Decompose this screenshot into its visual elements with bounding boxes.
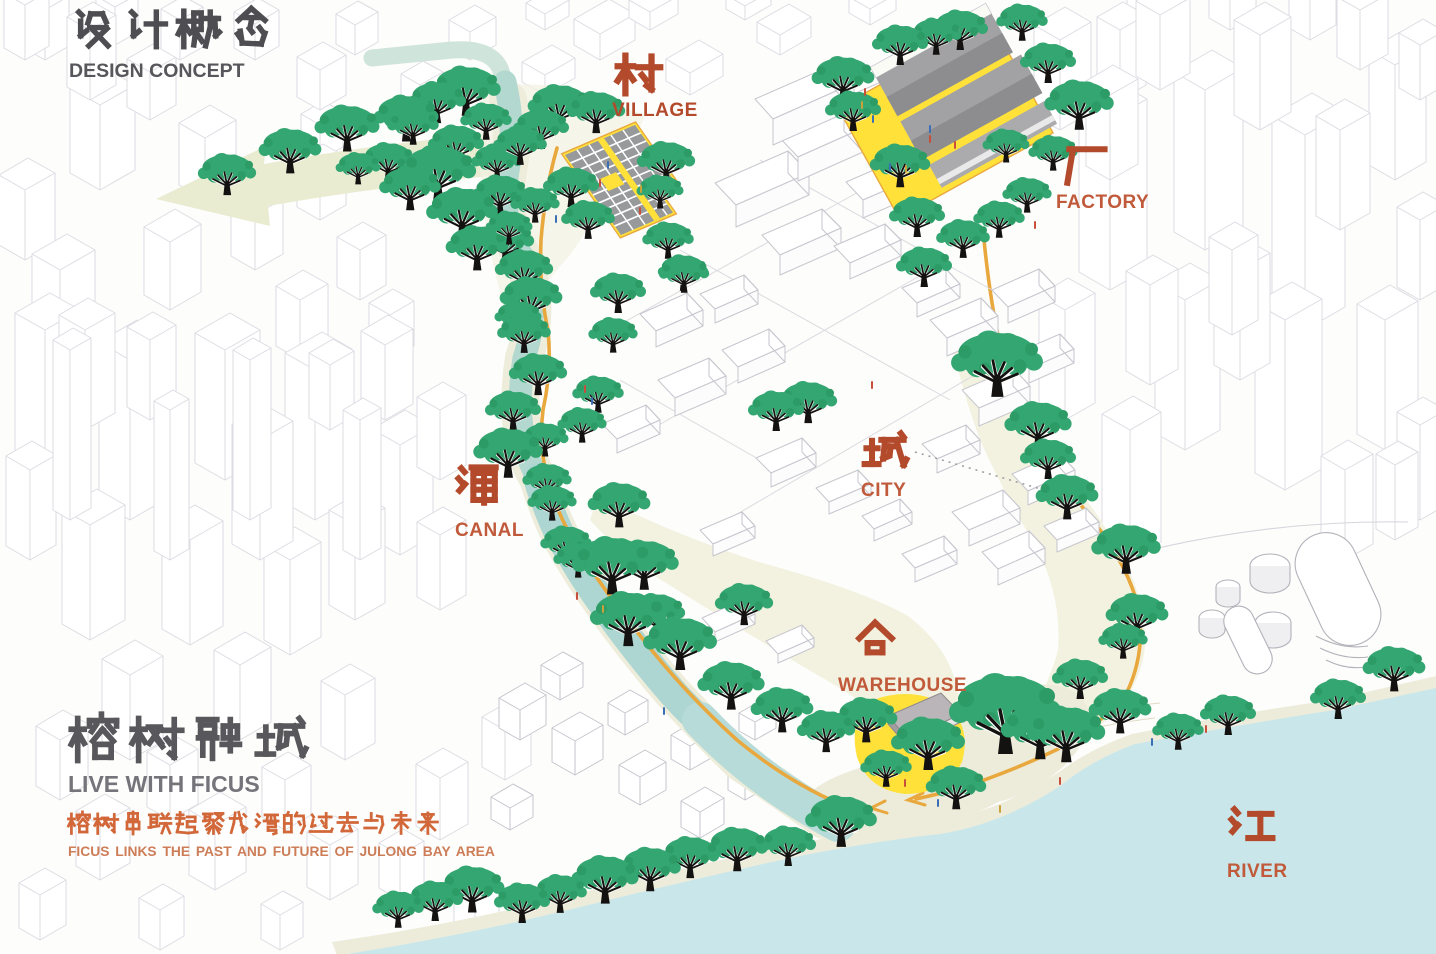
svg-text:RIVER: RIVER bbox=[1227, 861, 1288, 882]
svg-text:VILLAGE: VILLAGE bbox=[612, 100, 698, 121]
svg-text:CANAL: CANAL bbox=[455, 520, 524, 541]
svg-text:LIVE WITH FICUS: LIVE WITH FICUS bbox=[68, 771, 260, 797]
svg-text:DESIGN CONCEPT: DESIGN CONCEPT bbox=[69, 60, 245, 82]
svg-text:FACTORY: FACTORY bbox=[1056, 192, 1149, 213]
svg-text:FICUS LINKS THE PAST AND FUTUR: FICUS LINKS THE PAST AND FUTURE OF JULON… bbox=[68, 844, 495, 859]
svg-text:CITY: CITY bbox=[861, 480, 906, 501]
svg-text:WAREHOUSE: WAREHOUSE bbox=[838, 675, 967, 696]
